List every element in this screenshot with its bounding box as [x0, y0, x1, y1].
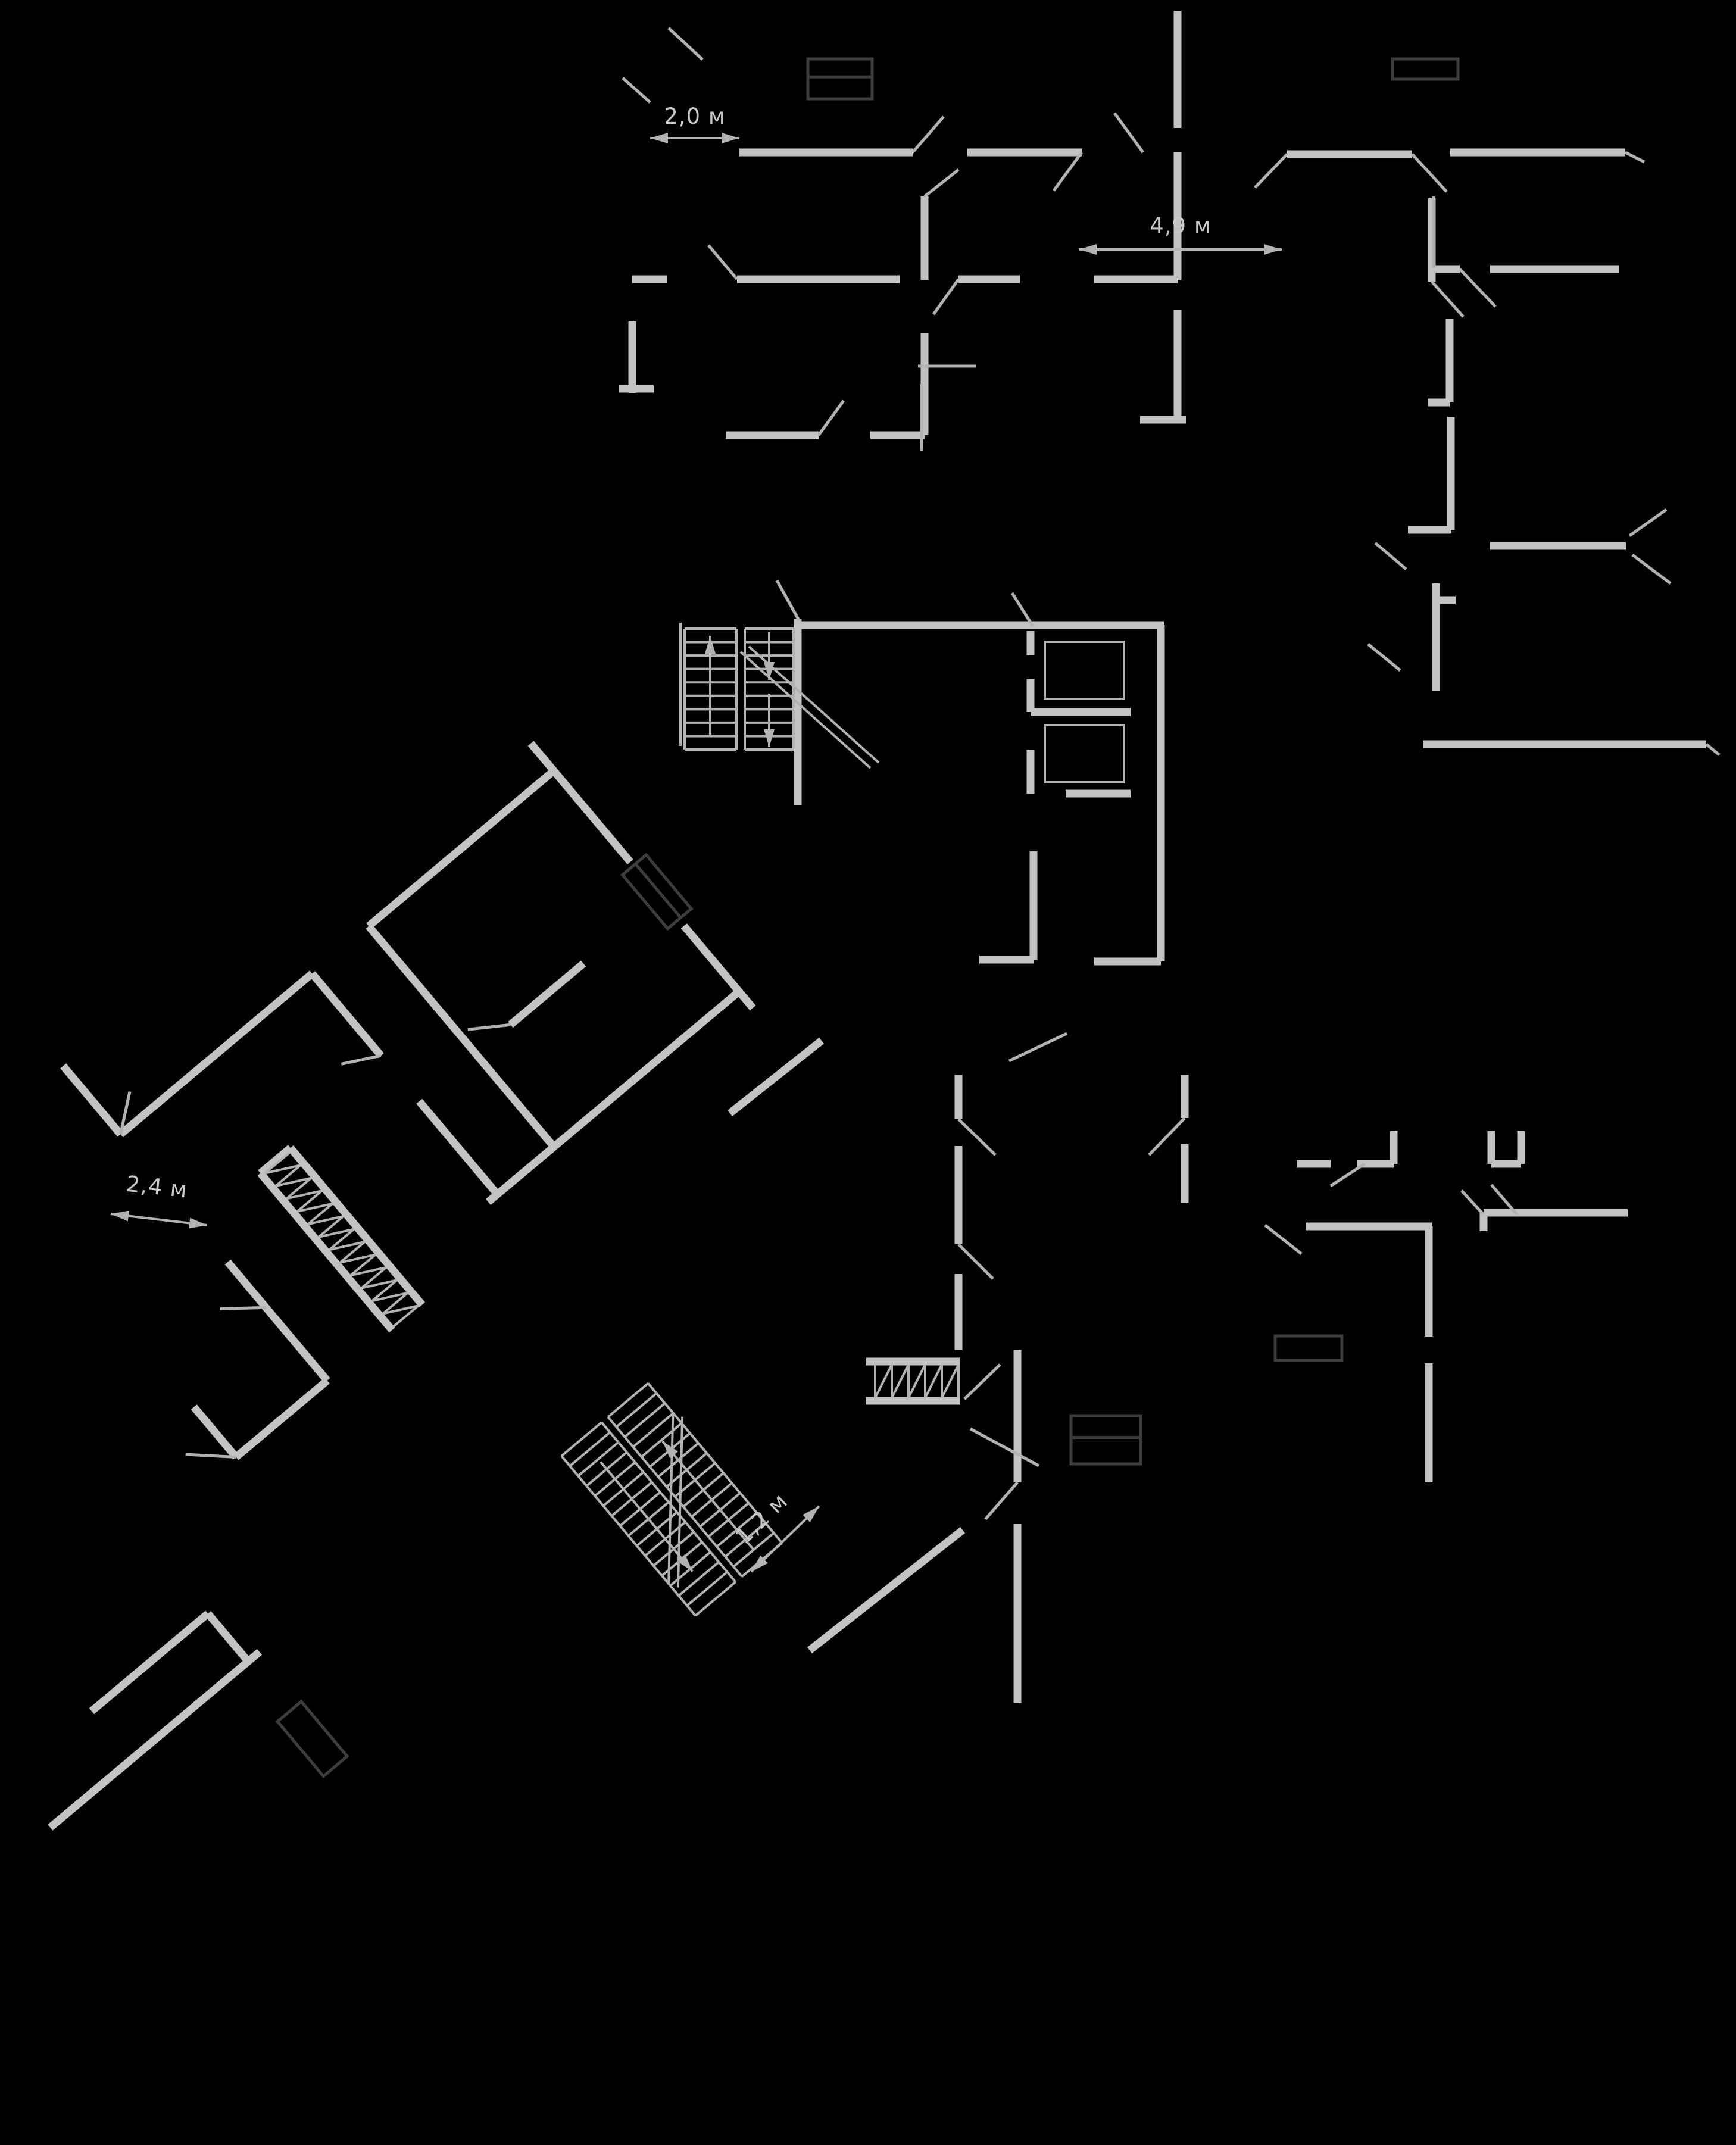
wall-segment — [63, 1066, 120, 1134]
ramp-hatch — [265, 1153, 418, 1326]
hatch-tick — [942, 1365, 958, 1398]
door-swing — [623, 78, 650, 102]
door-swing — [913, 117, 944, 152]
arrowhead — [1264, 244, 1282, 255]
arrowhead — [650, 133, 668, 143]
rotated-wing — [0, 692, 1041, 2021]
door-swing — [1412, 154, 1447, 192]
stair-tread — [561, 1422, 601, 1456]
floor-plan-page: 2,0 м 4,9 м 2,4 м 1,2 м — [0, 0, 1736, 2145]
door-swing — [1462, 1191, 1484, 1214]
hatch-tick — [908, 1365, 925, 1398]
elevator-car — [1045, 642, 1124, 699]
arrowhead — [764, 729, 775, 747]
wall-segment — [92, 1613, 208, 1711]
door-swing — [1265, 1225, 1301, 1254]
arrowhead — [111, 1211, 129, 1222]
door-swing — [1432, 282, 1463, 317]
door-swing — [220, 1286, 266, 1331]
door-swing — [1009, 1034, 1067, 1061]
door-swing — [925, 170, 958, 196]
wall-segment — [730, 1041, 822, 1113]
wall-segment — [810, 1530, 963, 1650]
door-swing — [777, 580, 799, 620]
window-symbol — [277, 1701, 347, 1776]
wall-segment — [488, 991, 739, 1202]
door-swing — [1375, 543, 1406, 569]
door-swing — [1054, 152, 1082, 191]
arrowhead — [705, 636, 716, 654]
plan-generated-layers — [0, 11, 1719, 2021]
wall-segment — [291, 1148, 422, 1305]
windows-layer — [808, 59, 1458, 1464]
main-ramp — [265, 1153, 418, 1326]
door-swing — [1149, 1118, 1185, 1155]
wall-segment — [121, 973, 313, 1134]
stair-tread — [679, 1562, 719, 1596]
door-swing — [964, 1365, 1000, 1399]
dimension-label-4-9m: 4,9 м — [1150, 213, 1212, 239]
door-swing — [1629, 510, 1666, 536]
stair-tread — [625, 1403, 664, 1437]
ramp-hatch — [875, 1365, 958, 1398]
small-ramp — [875, 1365, 958, 1398]
window-divider — [635, 864, 680, 917]
wall-segment — [194, 1407, 236, 1457]
elevator-car — [1045, 725, 1124, 782]
hatch-tick — [925, 1365, 942, 1398]
arrowhead — [764, 662, 775, 680]
stair-tread — [695, 1582, 735, 1616]
stair-tread — [570, 1432, 610, 1466]
stair-tread — [687, 1572, 727, 1606]
staircase-rotated — [561, 1380, 786, 1615]
wall-segment — [312, 973, 381, 1056]
window-symbol — [623, 855, 692, 929]
door-swing — [985, 1482, 1017, 1519]
stair-tread — [608, 1384, 648, 1417]
arrowhead — [722, 133, 739, 143]
dimension-label-2-4m: 2,4 м — [125, 1171, 189, 1203]
wall-segment — [419, 1101, 497, 1194]
wall-segment — [50, 1652, 260, 1828]
door-swing — [1255, 154, 1287, 188]
dimension-label-2-0m: 2,0 м — [664, 104, 726, 129]
wall-segment — [369, 771, 554, 926]
door-swing — [819, 401, 844, 435]
door-swing — [669, 28, 702, 60]
wall-segment — [510, 963, 583, 1025]
floor-plan-drawing: 2,0 м 4,9 м 2,4 м 1,2 м — [0, 0, 1736, 2145]
door-swing — [186, 1431, 236, 1481]
wall-segment — [208, 1613, 248, 1661]
door-swing — [1632, 555, 1671, 583]
hatch-tick — [875, 1365, 892, 1398]
dimension-arrows-layer — [111, 133, 1282, 1572]
door-swing — [1331, 1164, 1365, 1186]
window-symbol — [1275, 1336, 1342, 1360]
door-swing — [970, 1429, 1039, 1466]
stair-tread — [633, 1413, 673, 1447]
staircase-main — [685, 629, 879, 768]
wall-segment — [227, 1262, 327, 1381]
door-swing — [1625, 152, 1644, 162]
wall-segment — [369, 926, 554, 1147]
door-swing — [933, 279, 958, 314]
window-symbol — [1392, 59, 1458, 79]
door-swings-layer — [623, 28, 1719, 1519]
door-swing — [1460, 269, 1495, 307]
wall-segment — [531, 744, 630, 862]
door-swing — [708, 245, 737, 279]
stair-tread — [578, 1443, 618, 1476]
door-swing — [958, 1119, 995, 1155]
window-symbol — [1071, 1416, 1141, 1464]
door-swing — [1368, 644, 1400, 670]
hatch-tick — [892, 1365, 908, 1398]
stair-tread — [616, 1393, 656, 1427]
walls-layer — [619, 11, 1706, 1703]
door-swing — [1114, 113, 1143, 152]
rotated-walls-layer — [0, 702, 866, 1828]
window-symbol — [808, 59, 872, 99]
wall-segment — [684, 926, 753, 1008]
wall-segment — [236, 1381, 327, 1457]
door-swing — [958, 1244, 993, 1279]
door-swing — [468, 1007, 511, 1048]
arrowhead — [1079, 244, 1097, 255]
wall-segment — [260, 1173, 392, 1331]
arrowhead — [189, 1218, 207, 1229]
door-swing — [1706, 744, 1719, 755]
